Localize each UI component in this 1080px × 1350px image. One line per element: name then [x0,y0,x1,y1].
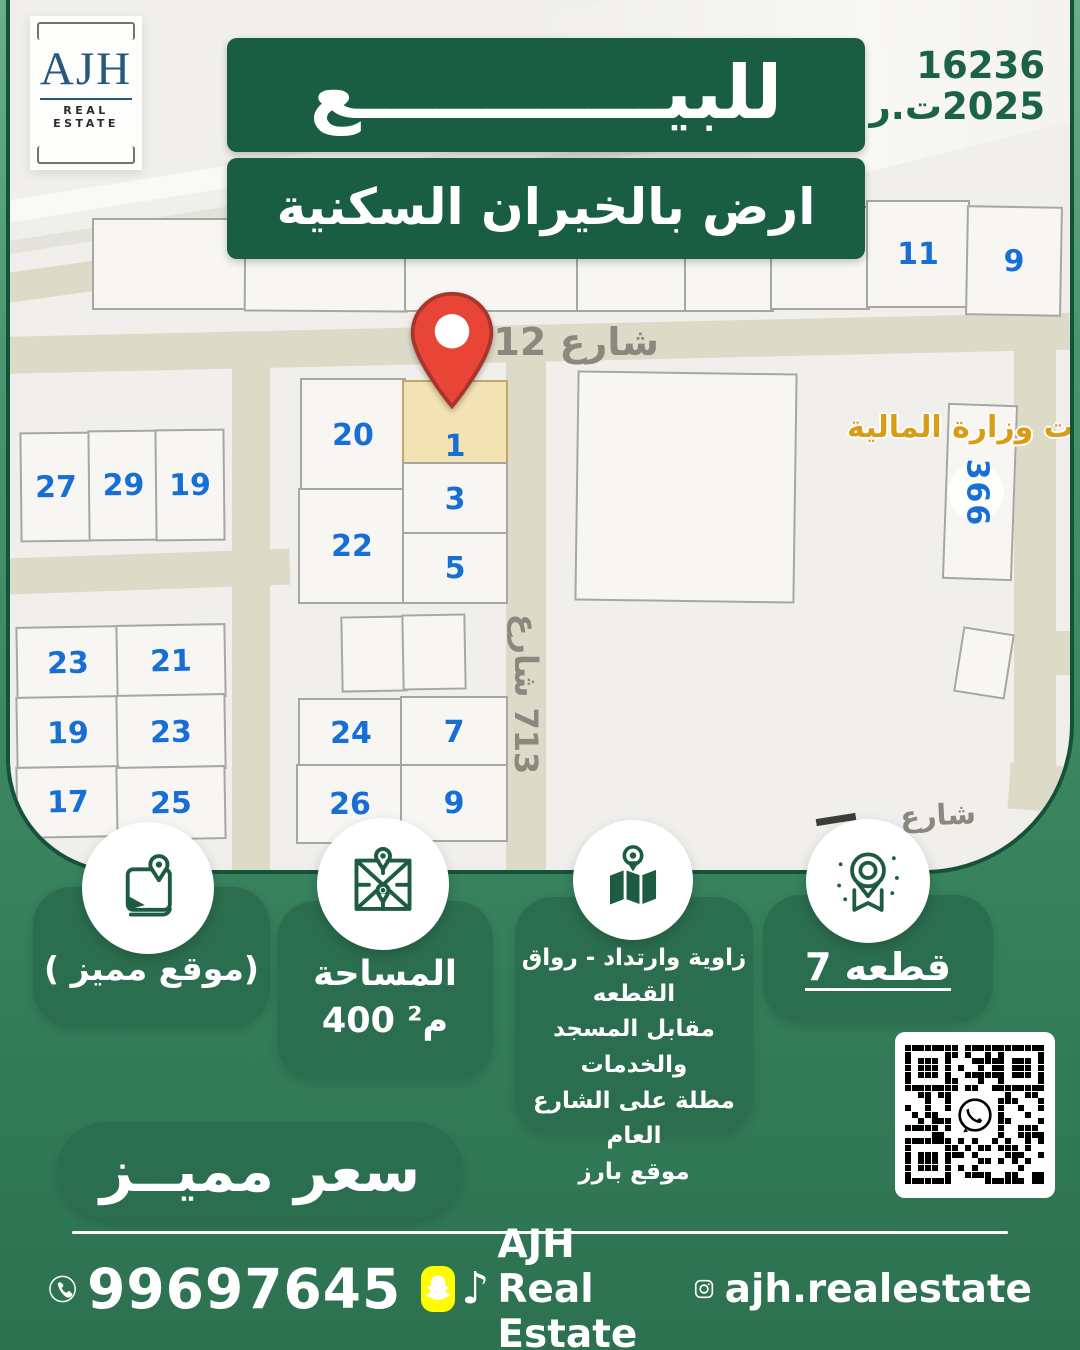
feature-text: مطلة على الشارع العام [515,1084,753,1155]
whatsapp-qr-code[interactable] [895,1032,1055,1198]
feature-text: القطعه [515,977,753,1013]
logo-bracket-bottom [37,146,135,164]
plot-number: 26 [329,787,371,822]
plot-number: 22 [331,529,373,564]
road-right-exit [1008,763,1074,816]
plot-number: 17 [47,784,89,820]
book-map-pin-icon [109,849,187,927]
price-text: سعر مميــز [100,1137,420,1205]
road-left-vertical [232,356,270,874]
map-plot-5: 5 [402,532,508,604]
plot-number: 23 [150,714,192,750]
real-estate-poster: 11 9 20 22 1 3 5 27 29 19 23 21 19 23 17… [0,0,1080,1350]
plot-number: 24 [330,716,372,751]
plot-number: 21 [150,643,192,679]
license-number: 16236 [895,46,1045,87]
plot-number: 1 [445,429,466,464]
subtitle-banner: ارض بالخيران السكنية [227,158,865,259]
street-713-number: 713 [507,707,545,774]
plot-number: 11 [897,237,939,272]
plot-number: 25 [150,785,192,821]
map-plot-20: 20 [300,378,406,492]
feature-text: زاوية وارتداد - رواق [515,941,753,977]
street-713-label: شارع713 [507,614,545,775]
logo-brand-text: AJH [30,46,142,93]
landmark-label: حلات وزارة المالية [847,410,1074,445]
plot-number: 9 [1003,243,1024,278]
map-plot-22: 22 [298,488,406,604]
license-info: 16236 2025ت.ر [895,46,1045,127]
street-713-word: شارع [507,614,545,698]
map-plot [92,218,248,310]
area-label: المساحة [277,951,493,998]
map-plot-23b: 23 [115,693,226,771]
map-plot-large [574,370,797,603]
feature-circle [573,820,693,940]
street-bottom-label: شارع [899,796,977,834]
map-plot-3: 3 [402,462,508,536]
feature-text: موقع بارز [515,1155,753,1191]
plot-number-text: قطعه 7 [763,945,993,989]
map-plot-9-top: 9 [965,205,1063,317]
whatsapp-icon [952,1092,998,1138]
plot-number: 7 [444,715,465,750]
logo-bracket-top [37,22,135,40]
snapchat-icon [421,1266,455,1312]
instagram-handle[interactable]: ajh.realestate [725,1267,1032,1312]
map-plot-29: 29 [87,430,159,542]
map-grid-icon [344,845,422,923]
map-plot-11: 11 [866,200,970,308]
phone-icon [48,1260,77,1318]
plot-number: 23 [47,645,89,681]
tiktok-icon: ♪ [461,1267,489,1311]
folded-map-pin-icon [597,844,669,916]
phone-number[interactable]: 99697645 [87,1257,401,1321]
feature-circle [82,822,214,954]
license-year: 2025ت.ر [895,87,1045,128]
map-plot-27: 27 [19,432,92,543]
for-sale-text: للبيــــــــــــع [310,50,782,136]
brand-logo: AJH REAL ESTATE [30,16,142,170]
map-plot-21: 21 [115,623,226,699]
logo-tagline: REAL ESTATE [30,104,142,130]
feature-circle [317,818,449,950]
plot-number: 9 [444,786,465,821]
plot-number: 29 [102,468,144,503]
map-plot-23a: 23 [15,625,120,701]
area-value: 400 م² [277,998,493,1045]
map-plot-19b: 19 [15,695,120,771]
plot-number: 27 [35,469,77,504]
map-plot [340,615,407,692]
feature-text: (موقع مميز ) [33,949,270,988]
logo-rule [40,98,132,100]
feature-circle [806,819,930,943]
plot-number: 20 [332,418,374,453]
subtitle-text: ارض بالخيران السكنية [277,178,816,236]
for-sale-banner: للبيــــــــــــع [227,38,865,152]
location-pin-icon [407,290,497,410]
plot-number: 3 [445,482,466,517]
social-handle[interactable]: AJH Real Estate [497,1222,668,1350]
plot-number: 19 [169,467,211,502]
parcel-366-label: 366 [960,459,995,528]
plot-number: 19 [47,715,89,751]
map-plot-19-top: 19 [154,429,225,542]
feature-text: مقابل المسجد والخدمات [515,1012,753,1083]
map-plot-17: 17 [15,765,120,839]
contact-bar: 99697645 ♪ AJH Real Estate ajh.realestat… [48,1256,1032,1322]
map-plot-24: 24 [298,698,404,768]
road-right-stub [1044,631,1074,675]
instagram-icon [693,1267,715,1311]
price-badge: سعر مميــز [57,1122,463,1220]
plot-number: 5 [445,551,466,586]
map-plot-7: 7 [400,696,508,768]
map-plot [401,613,466,690]
location-badge-icon [830,843,906,919]
map-plot-small [953,626,1015,699]
